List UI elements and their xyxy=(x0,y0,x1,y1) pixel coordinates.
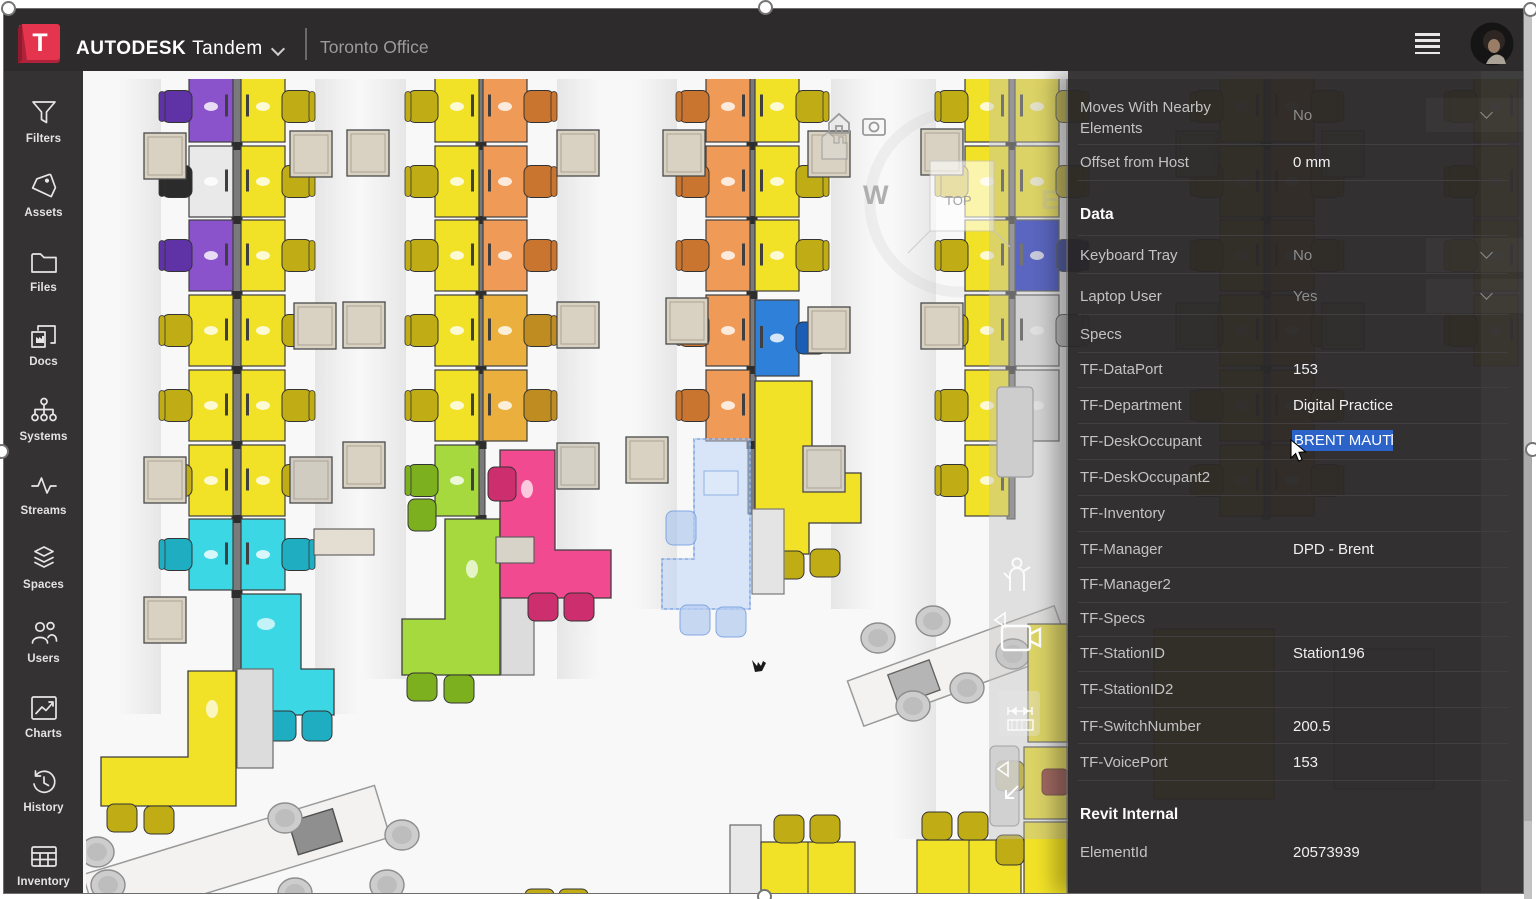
svg-text:TOP: TOP xyxy=(945,193,972,208)
svg-text:T: T xyxy=(32,29,47,57)
svg-text:W: W xyxy=(863,180,889,210)
